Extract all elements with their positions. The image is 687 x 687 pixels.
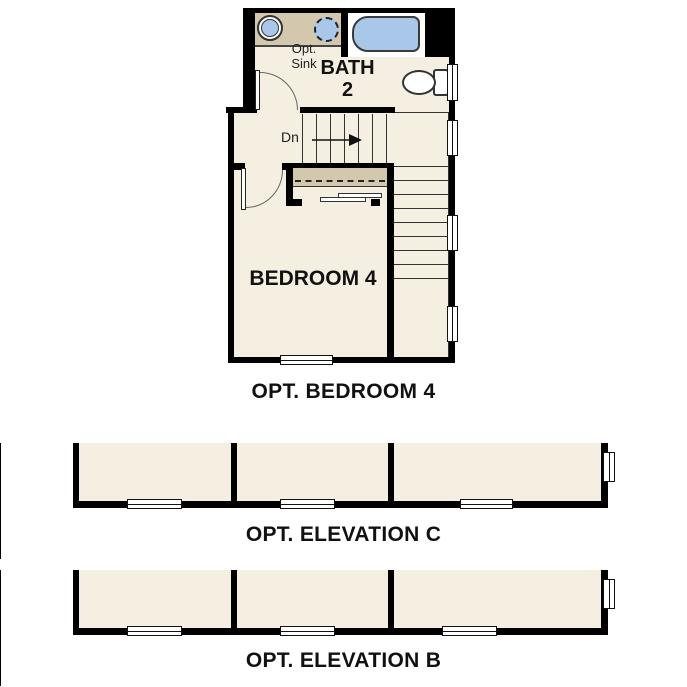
right-wall-window-2 [447,215,458,251]
elevation-window-3 [460,499,513,509]
wall-plan-left [228,110,234,363]
closet-rod-bar [320,197,366,202]
wall-corner-block [425,8,455,57]
elevation-c-caption: OPT. ELEVATION C [0,524,687,547]
elevation-window-2 [280,499,335,509]
stair-landing-edge [395,112,449,113]
wall-vanity-tub-divider [341,8,348,57]
elevation-partition-1 [231,443,237,501]
elevation-right-window [603,452,615,482]
elevation-window-3 [442,626,497,636]
elevation-window-1 [127,499,182,509]
wall-plan-bottom [228,357,455,363]
vanity-sink-basin [261,19,279,37]
wall-closet-left-foot [293,199,302,206]
bedroom-window [280,355,333,365]
closet-dashed-line [295,180,385,182]
floor-plan-caption: OPT. BEDROOM 4 [0,381,687,404]
stairs-direction-arrow-icon [310,132,362,148]
bedroom-room-label: BEDROOM 4 [233,268,393,291]
floorplan-sheet: Dn Opt. Sink BATH 2 BEDROOM 4 [0,0,687,687]
elevation-floor [78,443,602,501]
elevation-window-1 [127,626,182,636]
bath-window [447,64,458,101]
bathtub [352,16,420,52]
elevation-b-plan [0,570,687,640]
wall-bath-bottom-right [300,107,395,113]
wall-bedroom-right [387,163,394,363]
right-wall-window-1 [447,120,458,156]
elevation-partition-2 [388,570,394,628]
stairs-down-label: Dn [281,129,299,145]
wall-top [243,8,455,13]
toilet-bowl [402,70,436,95]
elevation-thin-line-1 [0,443,1,501]
optional-sink-dashed [314,17,339,42]
wall-closet-right-foot [371,199,380,206]
opt-sink-label-line1: Opt. [278,42,330,57]
bath-room-label: BATH 2 [300,58,395,101]
right-wall-window-3 [447,306,458,342]
stairs-lower-flight [394,166,448,290]
elevation-right-window [603,579,615,609]
elevation-wall-left [73,570,79,635]
elevation-wall-left [73,443,79,508]
wall-bath-left [243,13,255,110]
elevation-c-plan [0,443,687,513]
bath-label-line1: BATH [300,58,395,80]
elevation-floor [78,570,602,628]
elevation-window-2 [280,626,335,636]
closet-understair-soffit [293,168,387,187]
elevation-b-caption: OPT. ELEVATION B [0,650,687,673]
elevation-partition-1 [231,570,237,628]
bath-label-line2: 2 [300,80,395,102]
elevation-thin-line-1 [0,570,1,628]
elevation-partition-2 [388,443,394,501]
wall-closet-left [286,163,293,206]
